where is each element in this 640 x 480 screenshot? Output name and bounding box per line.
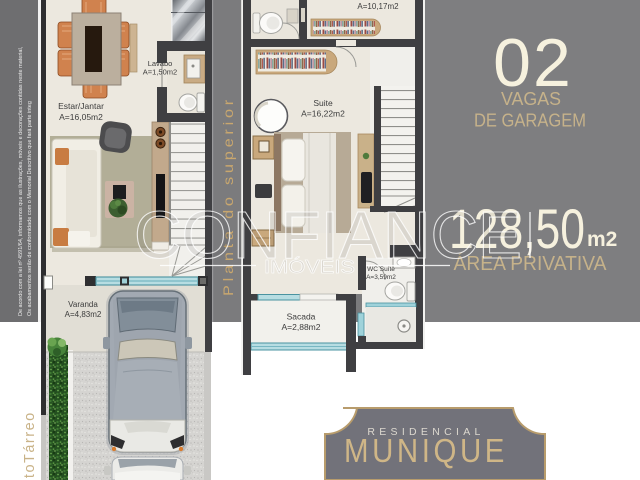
svg-text:IMÓVEIS: IMÓVEIS	[264, 256, 355, 277]
svg-text:Os acabamentos serão de confor: Os acabamentos serão de conformidade com…	[27, 101, 33, 316]
svg-text:PavimentoTárreo: PavimentoTárreo	[22, 411, 38, 480]
svg-text:MUNIQUE: MUNIQUE	[344, 432, 508, 469]
svg-text:Sacada: Sacada	[287, 312, 316, 322]
svg-text:VAGAS: VAGAS	[501, 89, 561, 109]
svg-text:A=1,50m2: A=1,50m2	[143, 68, 177, 77]
svg-text:De acordo com a lei nº 4591/64: De acordo com a lei nº 4591/64, informam…	[17, 46, 24, 316]
svg-text:Varanda: Varanda	[68, 300, 98, 309]
svg-text:A=3,59m2: A=3,59m2	[366, 274, 396, 281]
svg-text:Estar/Jantar: Estar/Jantar	[58, 101, 104, 111]
svg-text:A=16,05m2: A=16,05m2	[59, 112, 103, 122]
svg-text:A=4,83m2: A=4,83m2	[65, 310, 102, 319]
svg-text:Suite: Suite	[313, 98, 333, 108]
svg-text:A=10,17m2: A=10,17m2	[357, 2, 399, 11]
svg-text:m2: m2	[587, 228, 617, 251]
svg-text:A=16,22m2: A=16,22m2	[301, 109, 345, 119]
svg-text:DE GARAGEM: DE GARAGEM	[474, 111, 586, 131]
svg-text:A=2,88m2: A=2,88m2	[282, 322, 321, 332]
